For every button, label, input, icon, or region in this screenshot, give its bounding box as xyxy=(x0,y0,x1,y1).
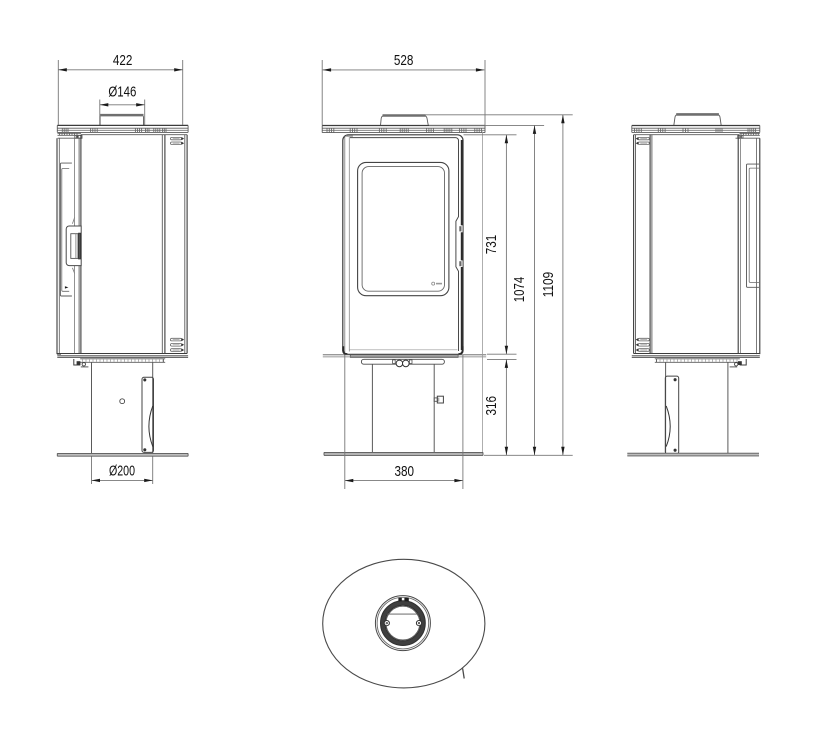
svg-text:380: 380 xyxy=(394,463,414,480)
svg-text:528: 528 xyxy=(394,52,414,69)
svg-text:1074: 1074 xyxy=(511,277,528,303)
svg-text:422: 422 xyxy=(113,52,133,69)
svg-text:Ø146: Ø146 xyxy=(108,83,136,100)
svg-text:731: 731 xyxy=(483,235,500,255)
svg-text:1109: 1109 xyxy=(540,272,557,298)
svg-text:Ø200: Ø200 xyxy=(109,463,135,480)
svg-text:316: 316 xyxy=(483,396,500,416)
